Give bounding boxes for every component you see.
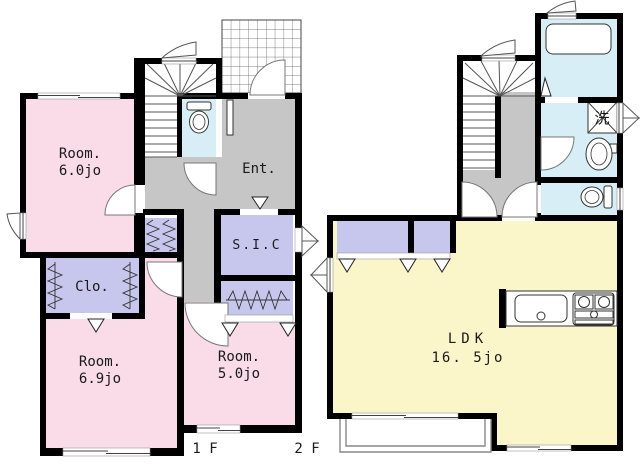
window-ldk-left bbox=[327, 258, 333, 292]
toilet-icon-2f bbox=[581, 186, 612, 208]
bathtub bbox=[546, 24, 611, 54]
closet-under-sic bbox=[221, 281, 293, 315]
window-room-c-bottom bbox=[197, 425, 240, 433]
room-b-area: 6.9jo bbox=[79, 371, 121, 387]
fan-window-washroom-upper bbox=[623, 103, 639, 118]
room-a-area: 6.0jo bbox=[59, 163, 101, 179]
kitchen-counter bbox=[499, 289, 617, 328]
bath-door-gap bbox=[545, 97, 578, 103]
sic-label: S.I.C bbox=[232, 238, 281, 253]
stove bbox=[573, 293, 614, 325]
fan-window-bath bbox=[547, 1, 576, 13]
floor-plan-2f: LDK 16. 5jo 洗 2 F bbox=[294, 1, 639, 457]
fan-window-sic-upper bbox=[302, 226, 318, 241]
window-sic-right bbox=[295, 228, 302, 252]
floor-plan-1f: Room. 6.0jo Ent. S.I.C Clo. Room. 6.9jo … bbox=[7, 20, 318, 457]
floor-label-1f: 1 F bbox=[192, 441, 217, 457]
balcony-door bbox=[352, 413, 458, 419]
fan-window-sic-lower bbox=[302, 241, 318, 256]
room-a-name: Room. bbox=[59, 146, 101, 162]
balcony bbox=[340, 419, 491, 452]
ldk-name: LDK bbox=[448, 331, 488, 347]
fan-window-washroom-lower bbox=[623, 118, 639, 133]
window-stair-top-1f bbox=[162, 58, 196, 64]
sink-drain bbox=[537, 312, 545, 320]
fan-window-ldk-upper bbox=[311, 258, 327, 275]
room-c-area: 5.0jo bbox=[218, 366, 260, 382]
bathroom bbox=[541, 19, 617, 97]
room-b-name: Room. bbox=[79, 354, 121, 370]
entrance-label: Ent. bbox=[242, 161, 276, 177]
ldk-area: 16. 5jo bbox=[431, 350, 504, 366]
floor-label-2f: 2 F bbox=[294, 441, 319, 457]
room-c-name: Room. bbox=[218, 349, 260, 365]
fan-window-stair-2f bbox=[481, 40, 515, 56]
window-toilet-right bbox=[617, 188, 623, 210]
floorplan-image: Room. 6.0jo Ent. S.I.C Clo. Room. 6.9jo … bbox=[0, 0, 640, 466]
laundry-label: 洗 bbox=[594, 109, 609, 127]
window-room-a-top bbox=[38, 93, 120, 99]
window-ldk-bottom-right bbox=[507, 445, 571, 451]
window-washroom-right bbox=[617, 103, 623, 133]
entrance-step bbox=[227, 100, 233, 135]
ldk-closet-a bbox=[337, 221, 408, 253]
toilet-room-2f bbox=[541, 183, 617, 215]
closet-label: Clo. bbox=[75, 279, 109, 295]
window-room-b-bottom bbox=[63, 448, 150, 456]
ldk-closet-b bbox=[414, 221, 450, 253]
fan-window-room-a bbox=[7, 213, 20, 239]
fan-window-stair-1f bbox=[162, 42, 196, 58]
window-room-a-left bbox=[20, 213, 26, 239]
window-bath-top bbox=[548, 13, 576, 19]
fan-window-ldk-lower bbox=[311, 275, 327, 292]
small-closet bbox=[145, 218, 177, 252]
